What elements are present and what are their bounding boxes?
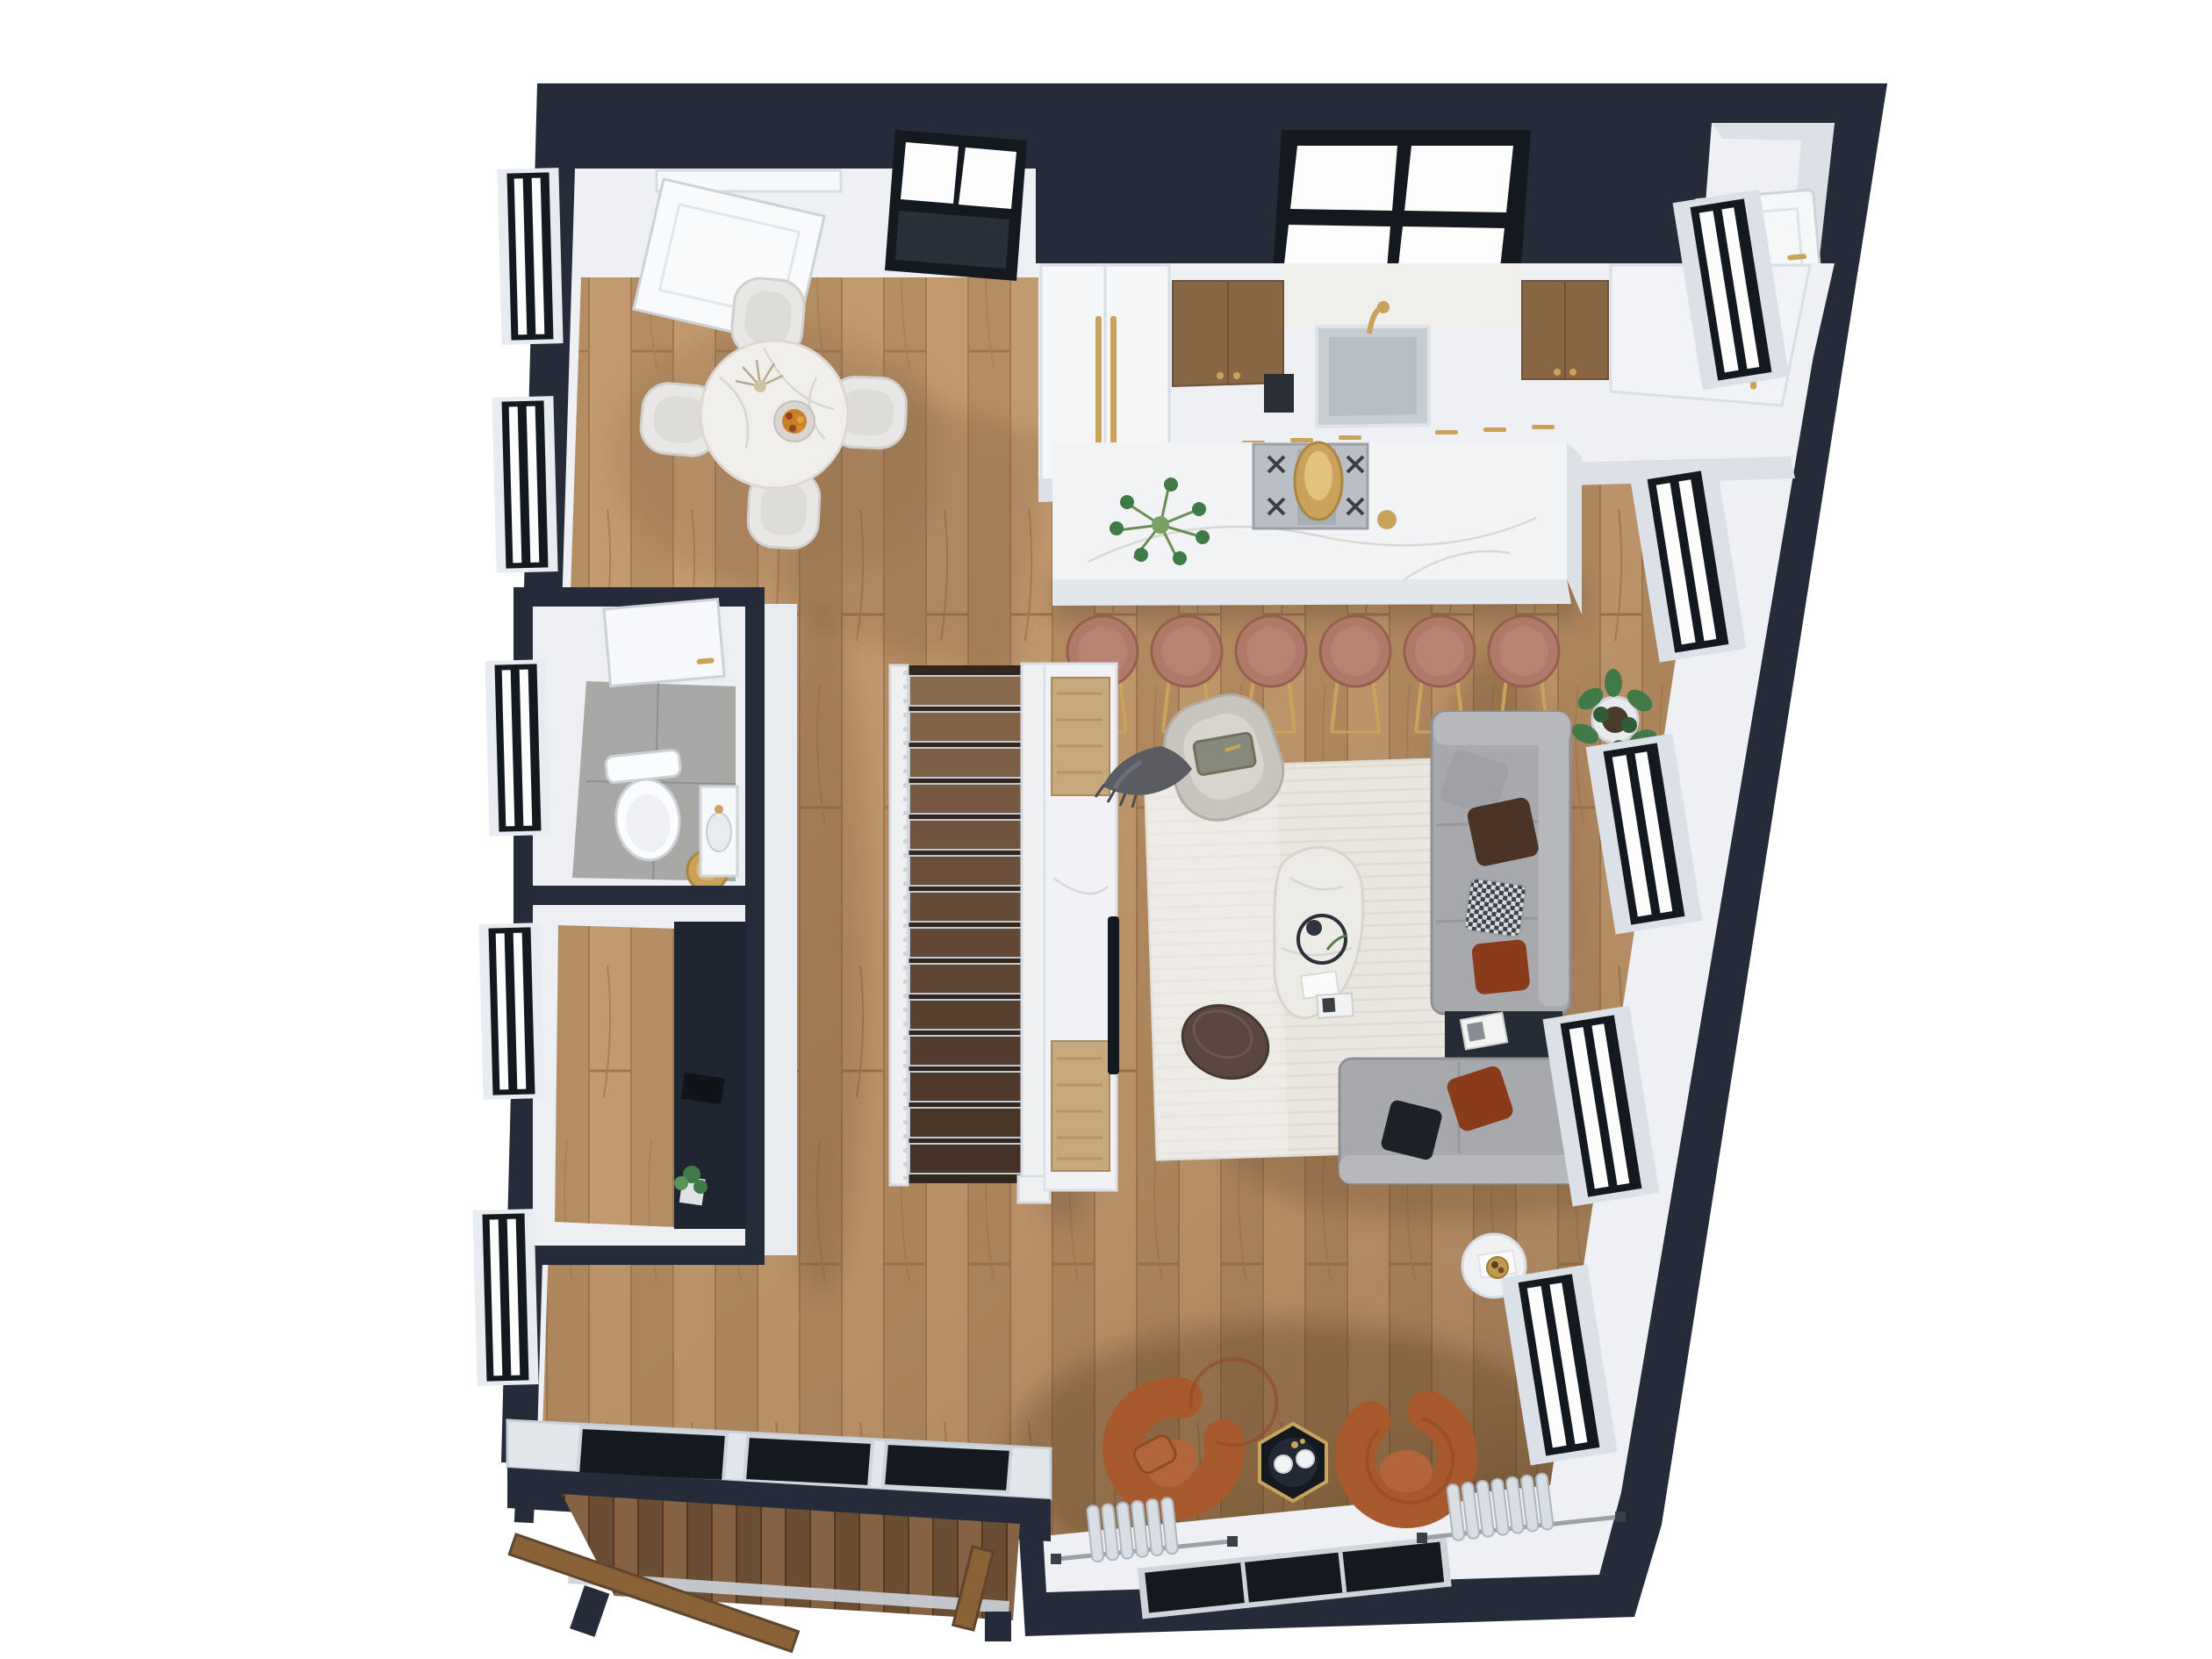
wood-panel-bottom [1052, 1041, 1110, 1171]
sofa-back-cushions [1539, 720, 1569, 1006]
upper-cabinet-right [1522, 281, 1608, 379]
upper-cabinet-left [1173, 281, 1283, 386]
wall-bracket [514, 1485, 535, 1523]
tv [1108, 916, 1119, 1074]
candle [1306, 920, 1322, 936]
stair-stringer-right [1022, 664, 1045, 1187]
bathroom-vanity [700, 786, 737, 876]
gold-bowl [1487, 1257, 1508, 1278]
bathroom-door [604, 600, 724, 686]
cup [1275, 1455, 1292, 1473]
entry-skylight-window [885, 130, 1027, 281]
coffee-table [1275, 847, 1363, 1018]
balcony-glass-panel [744, 1436, 873, 1487]
staircase [890, 664, 1050, 1203]
fruit-plate [774, 401, 815, 442]
cup [1296, 1450, 1314, 1468]
pillow-houndstooth [1464, 878, 1527, 937]
pillow-rust [1471, 939, 1531, 995]
nook-floor [555, 925, 676, 1227]
espresso-machine [1264, 374, 1294, 413]
media-wall [1045, 664, 1119, 1190]
wood-panel-top [1052, 678, 1110, 795]
sofa-chaise-section [1339, 1059, 1578, 1183]
sofa-armrest [1433, 712, 1570, 745]
floor-plan-page [0, 0, 2212, 1659]
balcony-post [985, 1612, 1011, 1641]
backsplash [1283, 263, 1522, 331]
dining-table [700, 341, 848, 488]
laptop [681, 1073, 725, 1104]
utensil-cup [1377, 510, 1397, 529]
bathroom [523, 597, 797, 895]
chaise-backrest [1339, 1155, 1578, 1183]
desk-nook [523, 895, 797, 1255]
window [497, 168, 563, 345]
balcony-glass-panel [883, 1443, 1011, 1492]
window [478, 923, 544, 1100]
sofa-main-section [1432, 712, 1570, 1014]
island-front-face [1052, 579, 1571, 606]
gold-tray [1295, 442, 1342, 520]
sofa-side-console [1445, 1011, 1562, 1062]
floor-plan-render [0, 0, 2212, 1659]
window [472, 1209, 538, 1386]
window [485, 659, 550, 837]
window [492, 396, 557, 573]
hexagonal-side-table [1260, 1424, 1326, 1501]
balcony [507, 1420, 1051, 1651]
balcony-post [570, 1585, 609, 1637]
